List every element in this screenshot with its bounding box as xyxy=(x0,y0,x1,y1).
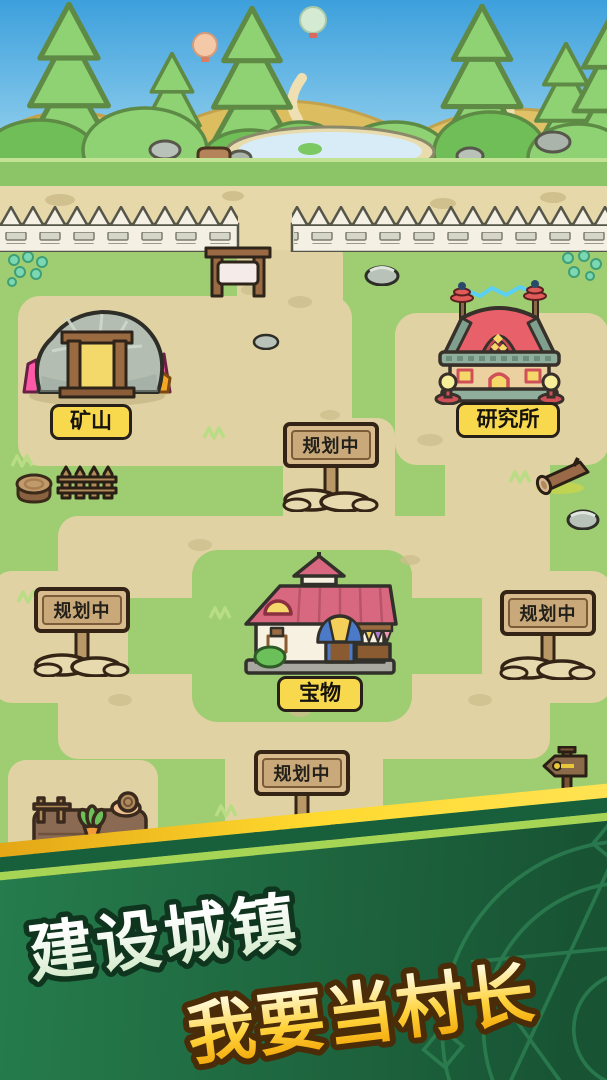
rock-icon xyxy=(364,262,400,286)
treasure-bush xyxy=(255,647,285,667)
rock-icon xyxy=(252,332,280,350)
rock-icon xyxy=(566,508,600,530)
research-body xyxy=(440,352,559,401)
treasure-label[interactable]: 宝物 xyxy=(277,676,363,712)
planning-sign[interactable]: 规划中 xyxy=(32,585,132,677)
building-mine[interactable] xyxy=(22,296,172,408)
building-treasure[interactable] xyxy=(240,552,400,682)
building-research[interactable] xyxy=(432,280,567,405)
snail-icon xyxy=(112,793,140,816)
wall-right-segment xyxy=(292,206,607,252)
game-screen: 矿山 xyxy=(0,0,607,1080)
planning-sign[interactable]: 规划中 xyxy=(281,420,381,512)
lightning-icon xyxy=(466,287,532,296)
path-spot xyxy=(45,194,75,206)
path-spot xyxy=(540,192,566,203)
wood-log-icon xyxy=(530,454,596,496)
wall-left-segment xyxy=(0,206,238,252)
tree-stump-icon xyxy=(12,470,56,504)
sky-scenery xyxy=(0,0,607,166)
planning-sign[interactable]: 规划中 xyxy=(498,588,598,680)
picket-fence-icon xyxy=(56,462,118,500)
research-label[interactable]: 研究所 xyxy=(456,402,560,438)
treasure-roof xyxy=(246,586,396,624)
planning-sign-text: 规划中 xyxy=(502,600,594,626)
grass-strip xyxy=(0,158,607,188)
treasure-awning-door xyxy=(318,616,362,662)
planning-sign-text: 规划中 xyxy=(36,597,128,623)
clover-cluster-icon xyxy=(558,250,604,284)
treasure-stall xyxy=(356,644,390,660)
banner-text-village-chief: 我要当村长 xyxy=(183,956,540,1074)
mine-entrance xyxy=(60,332,134,397)
picket-wall xyxy=(0,206,607,252)
lilypad-icon xyxy=(298,143,322,155)
notice-board-icon xyxy=(204,242,272,298)
planning-sign-text: 规划中 xyxy=(285,432,377,458)
mine-label[interactable]: 矿山 xyxy=(50,404,132,440)
path-spot xyxy=(222,191,244,201)
clover-cluster-icon xyxy=(6,252,54,288)
planning-sign-text: 规划中 xyxy=(256,760,348,786)
